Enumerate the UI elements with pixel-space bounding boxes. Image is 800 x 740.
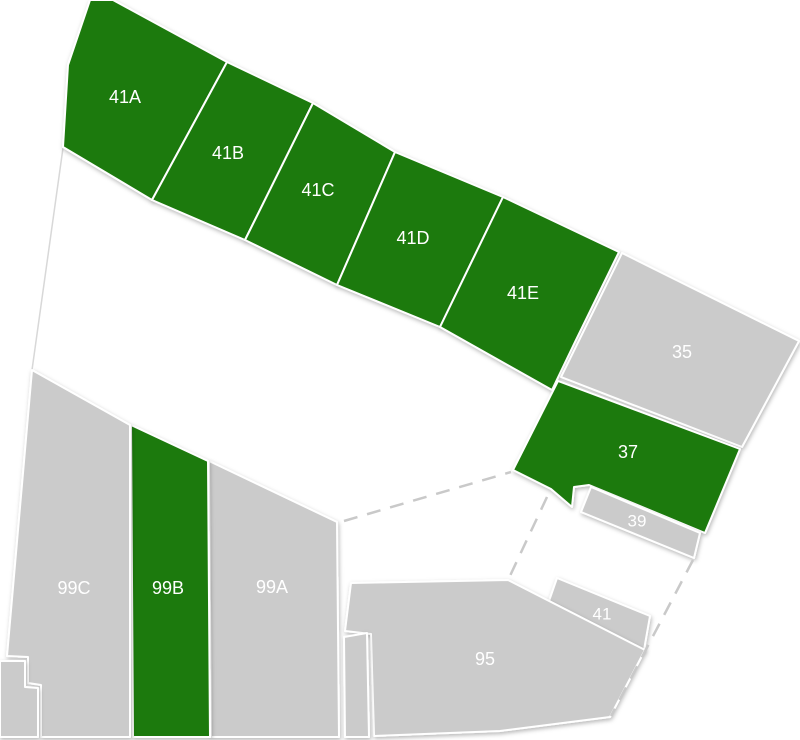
dashed-boundary-line <box>344 472 511 521</box>
parcel-unlabeled-13 <box>344 633 369 737</box>
plot-map-canvas: 41A41B41C41D41E353739419599A99B99C <box>0 0 800 740</box>
tract-boundary-lines <box>32 148 63 370</box>
parcel-99B[interactable] <box>131 425 210 737</box>
plot-map: 41A41B41C41D41E353739419599A99B99C <box>0 0 800 740</box>
parcel-layer <box>0 0 799 737</box>
parcel-99A[interactable] <box>209 461 339 737</box>
dashed-boundary-line <box>509 497 547 578</box>
tract-boundary-line <box>32 148 63 370</box>
